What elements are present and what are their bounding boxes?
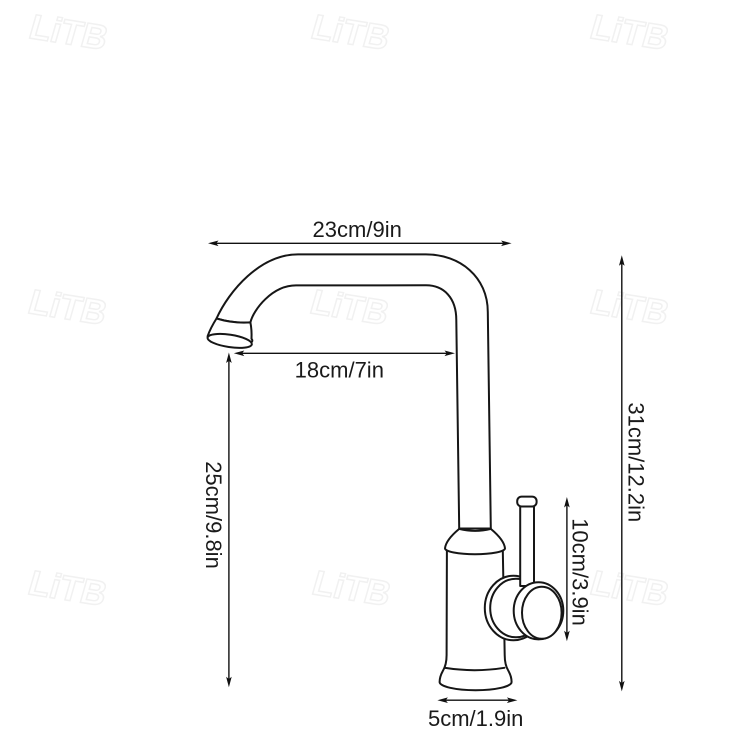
svg-text:LiTB: LiTB [586, 8, 674, 58]
svg-text:25cm/9.8in: 25cm/9.8in [201, 461, 226, 569]
svg-text:23cm/9in: 23cm/9in [313, 217, 402, 242]
svg-text:18cm/7in: 18cm/7in [295, 357, 384, 382]
svg-text:LiTB: LiTB [25, 8, 113, 58]
svg-text:LiTB: LiTB [307, 8, 395, 58]
svg-text:LiTB: LiTB [586, 283, 674, 333]
svg-text:5cm/1.9in: 5cm/1.9in [428, 706, 523, 731]
svg-text:LiTB: LiTB [586, 564, 674, 614]
svg-text:LiTB: LiTB [308, 564, 396, 614]
svg-text:LiTB: LiTB [24, 283, 112, 333]
svg-text:10cm/3.9in: 10cm/3.9in [568, 518, 593, 626]
svg-text:LiTB: LiTB [24, 564, 112, 614]
svg-text:LiTB: LiTB [306, 283, 394, 333]
svg-text:31cm/12.2in: 31cm/12.2in [624, 402, 649, 522]
